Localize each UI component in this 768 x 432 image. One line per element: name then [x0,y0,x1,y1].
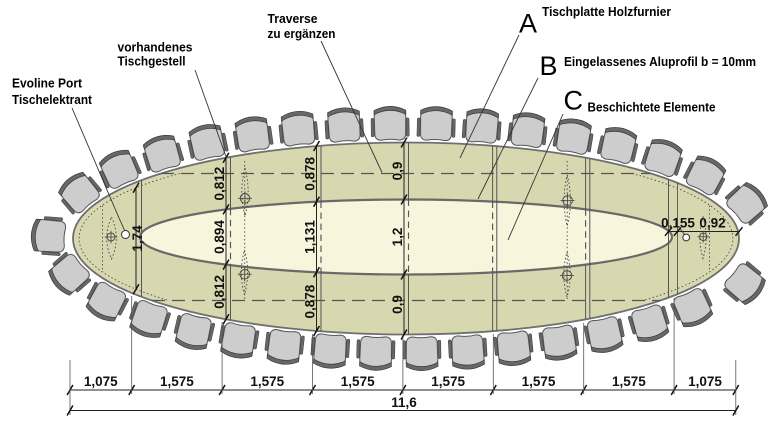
svg-text:0,812: 0,812 [212,275,227,309]
svg-text:vorhandenes: vorhandenes [118,40,193,55]
svg-text:Tischgestell: Tischgestell [118,54,186,69]
svg-text:zu ergänzen: zu ergänzen [268,26,336,41]
svg-text:0,894: 0,894 [212,220,227,254]
svg-text:1,2: 1,2 [390,228,405,247]
svg-text:1,575: 1,575 [612,374,646,389]
svg-text:1,075: 1,075 [84,374,118,389]
svg-text:B: B [540,51,558,81]
svg-text:0,878: 0,878 [303,284,318,318]
svg-text:0,9: 0,9 [390,295,405,314]
svg-text:Beschichtete Elemente: Beschichtete Elemente [588,100,716,115]
svg-text:Tischplatte Holzfurnier: Tischplatte Holzfurnier [542,4,671,19]
svg-text:1,575: 1,575 [160,374,194,389]
svg-text:1,075: 1,075 [688,374,722,389]
svg-text:0,9: 0,9 [390,162,405,181]
svg-text:1,74: 1,74 [130,225,145,252]
svg-text:1,131: 1,131 [303,220,318,254]
svg-text:0,155: 0,155 [661,216,695,231]
svg-text:Eingelassenes Aluprofil b = 10: Eingelassenes Aluprofil b = 10mm [564,54,756,69]
svg-text:1,575: 1,575 [431,374,465,389]
svg-text:0,878: 0,878 [303,157,318,191]
svg-text:Tischelektrant: Tischelektrant [12,92,93,107]
svg-text:Evoline Port: Evoline Port [12,76,83,91]
svg-text:0,812: 0,812 [212,167,227,201]
svg-text:A: A [519,9,537,39]
svg-text:1,575: 1,575 [522,374,556,389]
svg-text:11,6: 11,6 [391,395,417,410]
svg-text:C: C [564,86,584,116]
svg-text:1,575: 1,575 [250,374,284,389]
svg-text:Traverse: Traverse [268,11,318,26]
svg-text:1,575: 1,575 [341,374,375,389]
